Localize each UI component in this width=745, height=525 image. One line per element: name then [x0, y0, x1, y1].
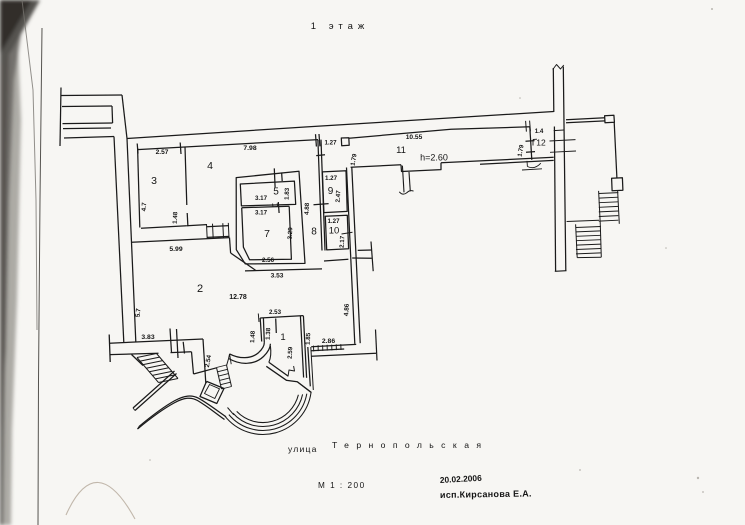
- svg-text:3.17: 3.17: [255, 210, 268, 217]
- svg-text:2.59: 2.59: [287, 346, 295, 359]
- svg-text:3: 3: [151, 175, 157, 187]
- svg-text:1.4: 1.4: [535, 128, 544, 135]
- svg-text:2.86: 2.86: [322, 338, 335, 345]
- svg-text:2.17: 2.17: [339, 235, 347, 248]
- svg-text:4.88: 4.88: [303, 202, 311, 215]
- svg-text:2.47: 2.47: [335, 190, 343, 203]
- svg-text:5.7: 5.7: [135, 308, 143, 318]
- svg-text:2.57: 2.57: [156, 149, 169, 156]
- svg-text:12.78: 12.78: [229, 294, 247, 301]
- svg-text:11: 11: [396, 145, 406, 156]
- svg-text:улица: улица: [288, 444, 318, 454]
- svg-text:2.56: 2.56: [262, 257, 275, 264]
- svg-text:7.98: 7.98: [243, 145, 256, 152]
- svg-text:3.17: 3.17: [255, 195, 268, 202]
- svg-text:2.53: 2.53: [269, 309, 282, 316]
- svg-text:1.48: 1.48: [249, 330, 257, 343]
- svg-text:5: 5: [273, 187, 279, 198]
- svg-text:1.38: 1.38: [265, 327, 273, 340]
- svg-text:h=2.60: h=2.60: [420, 153, 448, 163]
- svg-text:4: 4: [207, 160, 213, 172]
- svg-text:М 1 : 200: М 1 : 200: [318, 481, 366, 490]
- svg-text:1.85: 1.85: [305, 332, 313, 345]
- svg-text:7: 7: [264, 228, 270, 240]
- svg-text:4.7: 4.7: [141, 202, 149, 212]
- svg-text:3.53: 3.53: [271, 273, 284, 280]
- svg-text:3.29: 3.29: [287, 227, 295, 240]
- svg-text:1.48: 1.48: [172, 211, 180, 224]
- svg-text:1.27: 1.27: [324, 140, 337, 147]
- svg-text:10.55: 10.55: [406, 134, 423, 141]
- svg-text:Тернопольская: Тернопольская: [332, 440, 488, 450]
- svg-text:8: 8: [311, 227, 317, 238]
- svg-text:1.27: 1.27: [327, 218, 340, 225]
- svg-text:1 этаж: 1 этаж: [311, 21, 369, 32]
- svg-text:9: 9: [328, 186, 334, 197]
- svg-text:1.83: 1.83: [283, 187, 291, 200]
- svg-text:4.86: 4.86: [343, 303, 351, 316]
- svg-text:12: 12: [536, 138, 546, 148]
- svg-text:3.83: 3.83: [141, 334, 154, 341]
- svg-text:1.27: 1.27: [325, 175, 338, 182]
- svg-text:10: 10: [329, 226, 340, 237]
- svg-text:1: 1: [280, 332, 285, 343]
- svg-text:исп.Кирсанова Е.А.: исп.Кирсанова Е.А.: [440, 488, 532, 500]
- svg-text:2: 2: [197, 283, 203, 295]
- svg-text:5.99: 5.99: [169, 246, 182, 253]
